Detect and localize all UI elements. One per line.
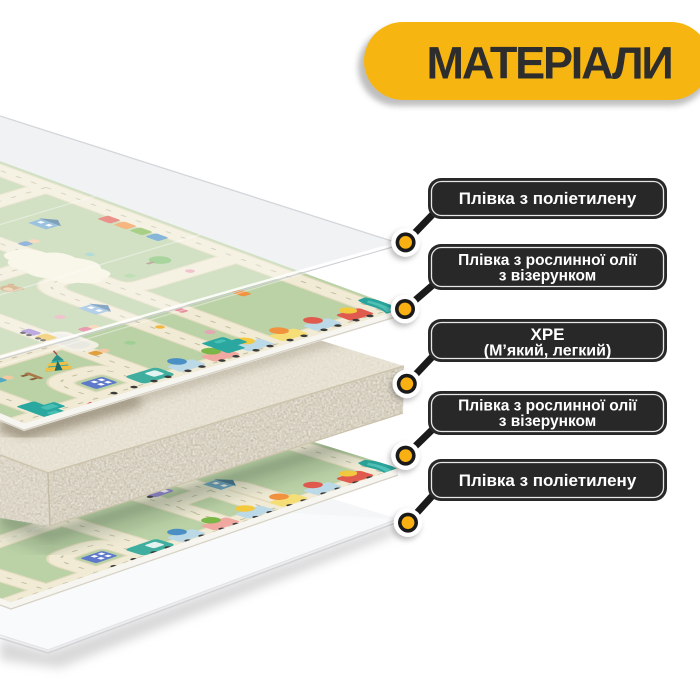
svg-text:(М’який, легкий): (М’який, легкий)	[484, 343, 612, 360]
svg-text:Плівка з поліетилену: Плівка з поліетилену	[459, 471, 637, 490]
svg-text:Плівка з рослинної олії: Плівка з рослинної олії	[458, 398, 637, 415]
svg-text:Плівка з поліетилену: Плівка з поліетилену	[459, 189, 637, 208]
svg-text:XPE: XPE	[530, 325, 564, 344]
svg-text:з візерунком: з візерунком	[499, 413, 597, 430]
svg-text:Плівка з рослинної олії: Плівка з рослинної олії	[458, 252, 637, 269]
svg-text:з візерунком: з візерунком	[499, 268, 597, 285]
svg-text:МАТЕРІАЛИ: МАТЕРІАЛИ	[427, 38, 672, 89]
